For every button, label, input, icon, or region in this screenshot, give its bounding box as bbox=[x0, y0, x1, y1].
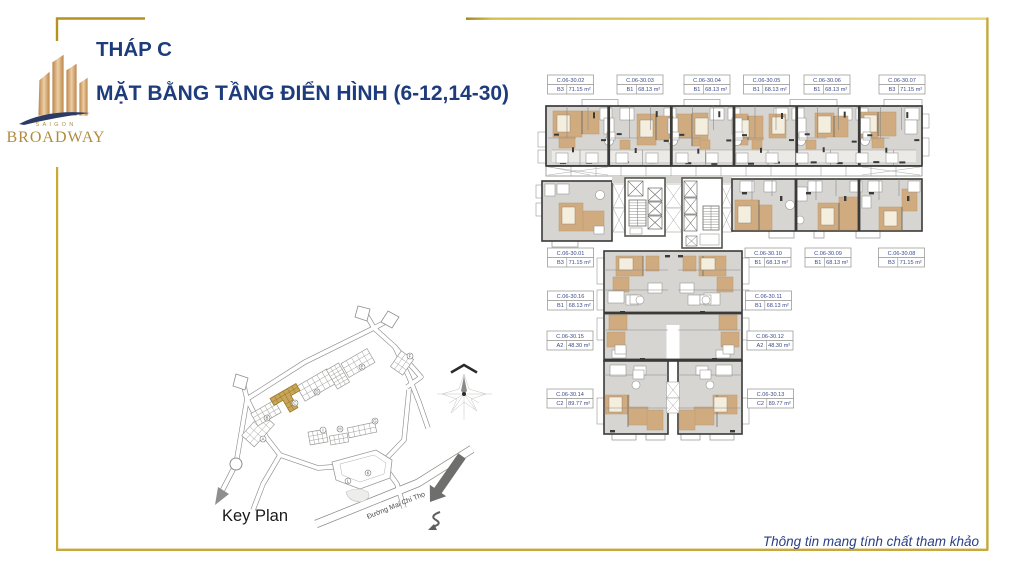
svg-text:71.15 m²: 71.15 m² bbox=[569, 87, 591, 93]
svg-text:SAIGON: SAIGON bbox=[36, 122, 77, 128]
svg-text:71.15 m²: 71.15 m² bbox=[900, 260, 922, 266]
svg-text:C.06-30.14: C.06-30.14 bbox=[556, 392, 584, 398]
svg-text:THÁP C: THÁP C bbox=[96, 38, 172, 61]
svg-text:B3: B3 bbox=[888, 87, 895, 93]
svg-text:MẶT BẰNG TẦNG ĐIỂN HÌNH (6-12,: MẶT BẰNG TẦNG ĐIỂN HÌNH (6-12,14-30) bbox=[96, 81, 509, 105]
svg-text:Thông tin mang tính chất tham: Thông tin mang tính chất tham khảo bbox=[763, 534, 980, 549]
svg-text:B: B bbox=[266, 416, 269, 421]
svg-text:Key Plan: Key Plan bbox=[222, 507, 288, 525]
svg-text:68.13 m²: 68.13 m² bbox=[569, 303, 591, 309]
svg-text:68.13 m²: 68.13 m² bbox=[638, 87, 660, 93]
svg-text:B1: B1 bbox=[693, 87, 700, 93]
svg-text:C.06-30.04: C.06-30.04 bbox=[693, 78, 721, 84]
svg-text:C.06-30.08: C.06-30.08 bbox=[888, 251, 916, 257]
svg-text:C.06-30.12: C.06-30.12 bbox=[756, 334, 784, 340]
svg-text:C2: C2 bbox=[556, 401, 563, 407]
svg-text:B1: B1 bbox=[753, 87, 760, 93]
svg-text:E: E bbox=[361, 365, 364, 370]
svg-text:C.06-30.10: C.06-30.10 bbox=[754, 251, 782, 257]
svg-text:68.13 m²: 68.13 m² bbox=[825, 87, 847, 93]
svg-text:89.77 m²: 89.77 m² bbox=[568, 401, 590, 407]
svg-text:89.77 m²: 89.77 m² bbox=[769, 401, 791, 407]
svg-text:K: K bbox=[367, 471, 370, 476]
svg-text:C.06-30.07: C.06-30.07 bbox=[888, 78, 916, 84]
svg-text:68.13 m²: 68.13 m² bbox=[766, 260, 788, 266]
svg-text:71.15 m²: 71.15 m² bbox=[569, 260, 591, 266]
svg-text:B1: B1 bbox=[557, 303, 564, 309]
svg-text:C.06-30.01: C.06-30.01 bbox=[557, 251, 585, 257]
svg-text:BROADWAY: BROADWAY bbox=[7, 129, 106, 146]
svg-text:A2: A2 bbox=[556, 343, 563, 349]
svg-text:C.06-30.02: C.06-30.02 bbox=[557, 78, 585, 84]
svg-text:68.13 m²: 68.13 m² bbox=[826, 260, 848, 266]
svg-text:B1: B1 bbox=[814, 260, 821, 266]
svg-text:C: C bbox=[293, 401, 296, 406]
svg-text:B3: B3 bbox=[557, 260, 564, 266]
svg-text:B1: B1 bbox=[754, 260, 761, 266]
svg-text:A: A bbox=[262, 437, 265, 442]
svg-text:48.30 m²: 48.30 m² bbox=[768, 343, 790, 349]
svg-text:68.13 m²: 68.13 m² bbox=[705, 87, 727, 93]
svg-text:68.13 m²: 68.13 m² bbox=[765, 87, 787, 93]
svg-text:C.06-30.05: C.06-30.05 bbox=[753, 78, 781, 84]
svg-text:C.06-30.09: C.06-30.09 bbox=[814, 251, 842, 257]
svg-text:A2: A2 bbox=[756, 343, 763, 349]
svg-text:I: I bbox=[322, 428, 323, 433]
svg-text:C.06-30.03: C.06-30.03 bbox=[626, 78, 654, 84]
svg-text:F: F bbox=[409, 354, 412, 359]
svg-text:B3: B3 bbox=[888, 260, 895, 266]
svg-text:B3: B3 bbox=[557, 87, 564, 93]
svg-text:D: D bbox=[315, 390, 318, 395]
svg-text:C.06-30.11: C.06-30.11 bbox=[755, 294, 782, 300]
svg-text:G: G bbox=[373, 419, 377, 424]
svg-text:C.06-30.13: C.06-30.13 bbox=[757, 392, 785, 398]
svg-text:C2: C2 bbox=[757, 401, 764, 407]
svg-text:H: H bbox=[338, 427, 341, 432]
svg-text:71.15 m²: 71.15 m² bbox=[900, 87, 922, 93]
svg-text:68.13 m²: 68.13 m² bbox=[767, 303, 789, 309]
svg-text:C.06-30.06: C.06-30.06 bbox=[813, 78, 841, 84]
svg-text:C.06-30.15: C.06-30.15 bbox=[556, 334, 584, 340]
svg-text:B1: B1 bbox=[755, 303, 762, 309]
svg-text:B1: B1 bbox=[626, 87, 633, 93]
svg-text:48.30 m²: 48.30 m² bbox=[568, 343, 590, 349]
svg-text:C.06-30.16: C.06-30.16 bbox=[557, 294, 585, 300]
svg-text:B1: B1 bbox=[813, 87, 820, 93]
